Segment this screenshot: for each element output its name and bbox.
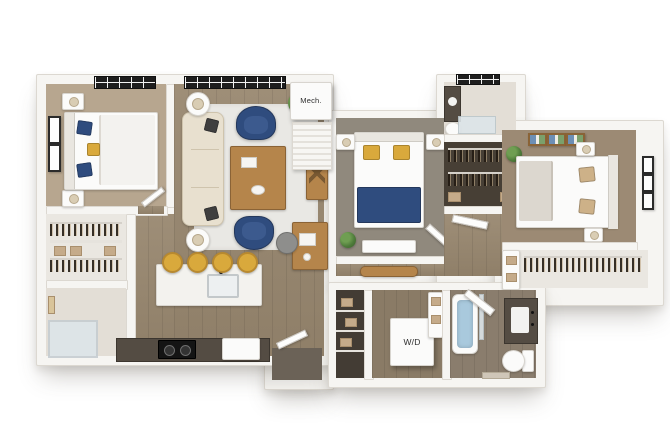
louvered-closet-door — [292, 122, 332, 170]
burner-icon — [164, 345, 175, 356]
bedroom1-window — [94, 76, 156, 89]
mech-closet: Mech. — [290, 82, 332, 120]
sofa-cushion-seam — [191, 149, 219, 150]
bathtub-water — [457, 300, 473, 348]
bar-stool-3 — [212, 252, 233, 273]
storage-box — [448, 192, 461, 202]
bathroom1-shower — [48, 320, 98, 358]
bedroom1-wall-art-1 — [48, 116, 61, 144]
bath-mat — [482, 372, 510, 379]
laptop — [299, 233, 316, 246]
faucet-icon — [531, 311, 534, 314]
dark-pillow — [204, 206, 220, 222]
bed-headboard — [608, 155, 618, 229]
bar-stool-4 — [237, 252, 258, 273]
bedroom1-nightstand-top — [62, 93, 84, 110]
storage-box — [70, 246, 82, 256]
bedroom3-top-art-2 — [547, 133, 566, 146]
sink-icon — [448, 97, 457, 106]
lamp-icon — [432, 138, 441, 147]
bedroom3-bed — [516, 156, 618, 228]
tan-pillow — [578, 198, 595, 215]
bedroom2-bed — [354, 132, 424, 228]
lamp-icon — [192, 98, 204, 110]
bedroom3-nightstand-top — [576, 142, 595, 156]
closet1-hanging-clothes-row1 — [50, 222, 122, 236]
mech-closet-label: Mech. — [300, 97, 321, 105]
washer-dryer-label: W/D — [403, 338, 420, 347]
bedroom2-nightstand-right — [426, 134, 445, 150]
storage-box — [506, 273, 517, 282]
entry-floor — [272, 348, 322, 380]
lamp-icon — [582, 145, 591, 154]
bedroom3-top-art-1 — [528, 133, 547, 146]
storage-box — [340, 338, 352, 347]
navy-pillow — [76, 120, 93, 136]
closet1-hanging-clothes-row2 — [50, 258, 122, 272]
floorplan-3d-render: Mech. — [0, 0, 670, 442]
yellow-pillow — [87, 143, 100, 156]
bed-headboard — [355, 133, 423, 142]
side-table-bottom — [186, 228, 210, 252]
closet1-shelf — [50, 240, 122, 243]
bathroom2-vanity — [504, 298, 538, 344]
navy-armchair-bottom — [234, 216, 274, 250]
faucet-icon — [531, 323, 534, 326]
vanity-sink — [511, 307, 529, 333]
bedroom3-wall-art-1 — [642, 156, 654, 174]
closet3-shelf-tower — [502, 250, 520, 290]
cooktop — [158, 340, 196, 359]
island-sink — [207, 274, 239, 298]
navy-pillow — [76, 162, 93, 178]
bedroom3-wall-art-3 — [642, 192, 654, 210]
laundry-shelf — [428, 292, 443, 338]
armchair-seat — [242, 222, 266, 240]
bedroom1-nightstand-bottom — [62, 190, 84, 207]
sofa — [182, 112, 224, 226]
pantry-shelf — [336, 350, 364, 352]
pantry-shelf — [336, 330, 364, 332]
bar-stool-2 — [187, 252, 208, 273]
toilet-bowl — [502, 350, 525, 372]
textured-blanket — [519, 161, 553, 221]
hallway-console — [360, 266, 418, 277]
storage-box — [341, 298, 353, 307]
closet3-hanging-clothes — [524, 256, 642, 272]
storage-box — [431, 297, 441, 306]
dark-pillow — [204, 118, 220, 134]
yellow-pillow — [393, 145, 410, 160]
burner-icon — [180, 345, 191, 356]
storage-box — [506, 256, 517, 265]
bedroom2-nightstand-left — [336, 134, 355, 150]
towel — [48, 296, 55, 314]
living-room-window — [184, 76, 286, 89]
bed-headboard — [65, 113, 75, 189]
bathroom3-window — [456, 74, 500, 85]
desk-chair — [276, 232, 298, 254]
bedroom1-door-opening — [138, 206, 164, 214]
navy-foot-blanket — [357, 187, 421, 223]
bedroom2-plant — [340, 232, 356, 248]
bathroom3-shower-pan — [458, 116, 496, 134]
sofa-cushion-seam — [191, 187, 219, 188]
lamp-icon — [590, 231, 599, 240]
storage-box — [431, 315, 441, 324]
side-table-top — [186, 92, 210, 116]
bedroom1-bed — [64, 112, 158, 190]
coffee-table-tray — [251, 185, 265, 195]
armchair-seat — [244, 116, 268, 134]
bedroom1-wall-art-2 — [48, 144, 61, 172]
bedroom2-bench — [362, 240, 416, 253]
lamp-icon — [69, 194, 79, 204]
storage-box — [345, 318, 357, 327]
bar-stool-1 — [162, 252, 183, 273]
storage-box — [54, 246, 66, 256]
tan-pillow — [578, 166, 595, 183]
navy-armchair-top — [236, 106, 276, 140]
coffee-table — [230, 146, 286, 210]
lamp-icon — [192, 234, 204, 246]
kitchen-sink-counter — [222, 338, 260, 360]
bedroom3-nightstand-bottom — [584, 228, 603, 242]
bedroom3-wall-art-2 — [642, 174, 654, 192]
pantry-shelf — [336, 310, 364, 312]
bed-duvet — [99, 115, 155, 185]
lamp-icon — [69, 97, 79, 107]
lamp-icon — [342, 138, 351, 147]
storage-box — [104, 246, 116, 256]
coffee-table-books — [241, 157, 257, 168]
desk-mug — [303, 253, 311, 261]
yellow-pillow — [363, 145, 380, 160]
